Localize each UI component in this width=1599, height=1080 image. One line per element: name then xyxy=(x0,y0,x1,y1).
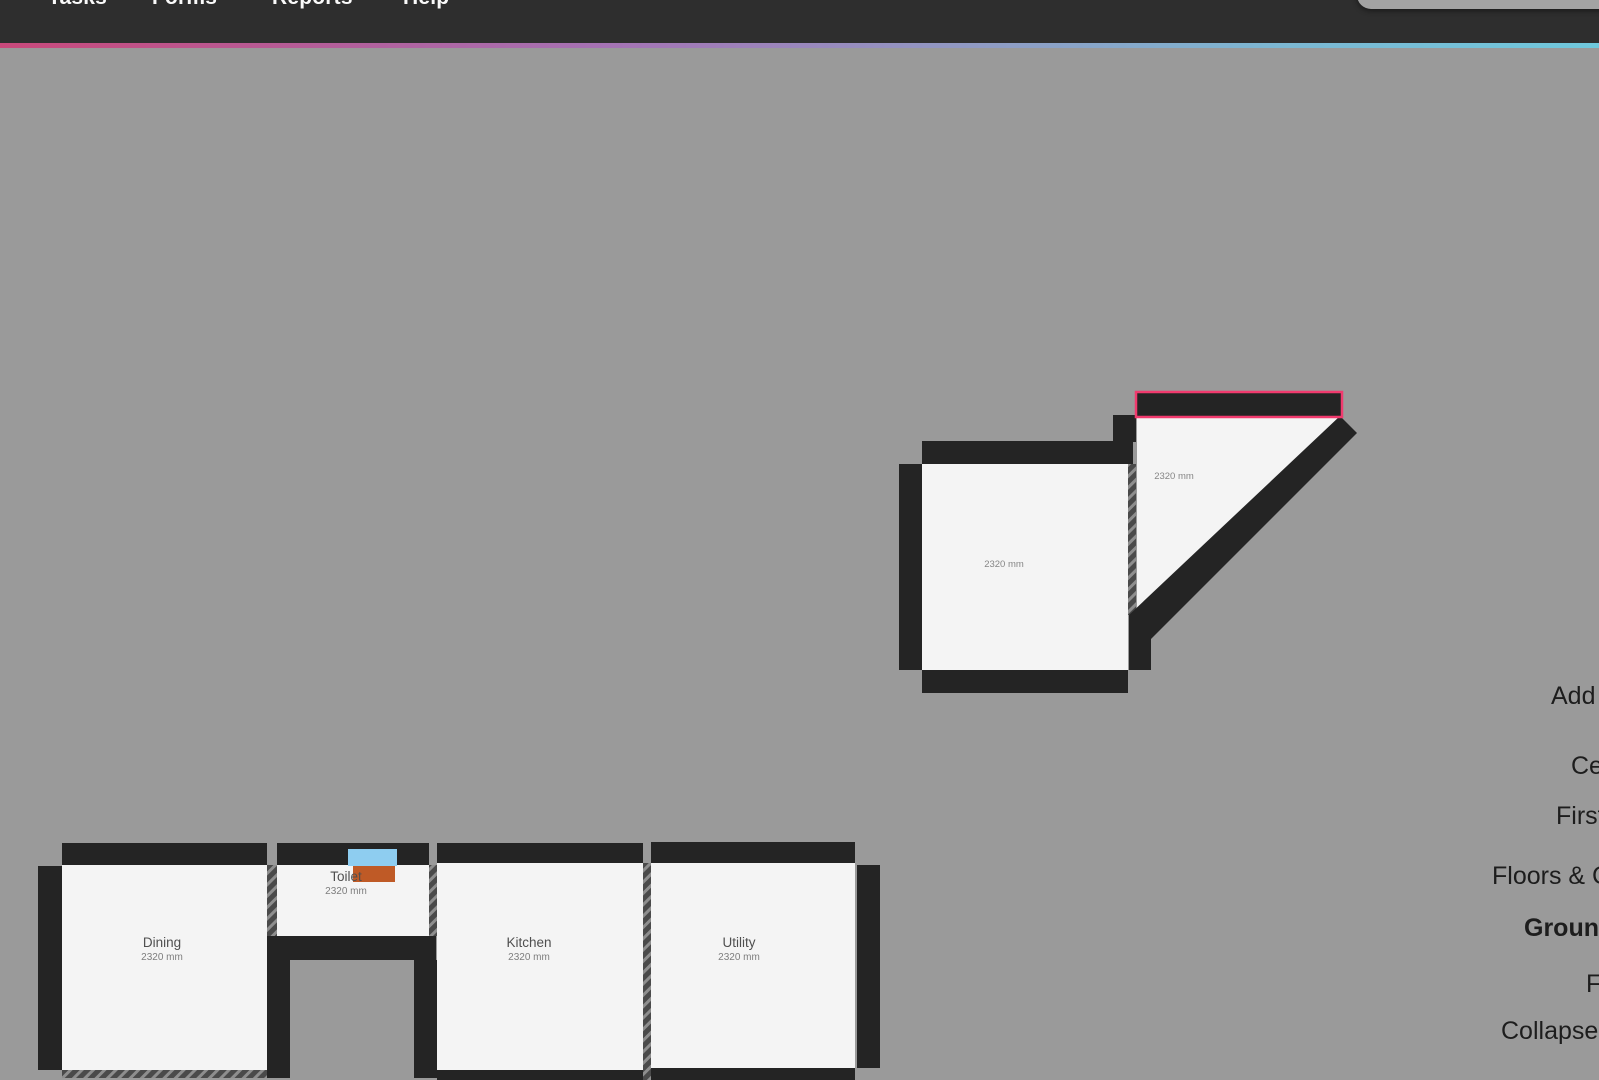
panel-item-floors-ceilings[interactable]: Floors & Cei xyxy=(1492,864,1599,889)
room-floor-kitchen[interactable] xyxy=(437,863,643,1070)
wall-utility-right[interactable] xyxy=(857,865,880,1068)
wall-corridor-left[interactable] xyxy=(267,960,290,1078)
room-floor-dining[interactable] xyxy=(62,865,267,1070)
room-dimension-label: 2320 mm xyxy=(718,952,760,963)
panel-item-f[interactable]: F xyxy=(1586,972,1599,997)
room-name-label: Toilet xyxy=(330,869,362,884)
menu-item-help[interactable]: Help xyxy=(403,0,449,10)
wall-hatched-dining-toilet[interactable] xyxy=(267,865,277,936)
room-dimension-label: 2320 mm xyxy=(984,559,1024,570)
wall-corridor-right[interactable] xyxy=(414,960,437,1078)
wall-dining-left[interactable] xyxy=(38,866,62,1070)
floorplan-canvas[interactable]: 2320 mm 2320 mm Dining 2320 mm Toilet xyxy=(0,0,1599,1080)
menu-item-tasks[interactable]: Tasks xyxy=(48,0,107,10)
wall-square-left[interactable] xyxy=(899,464,922,670)
wall-hatched-square-triangle[interactable] xyxy=(1128,464,1136,615)
wall-below-toilet[interactable] xyxy=(267,936,436,960)
menu-item-forms[interactable]: Forms xyxy=(152,0,217,10)
wall-hatched-kitchen-utility[interactable] xyxy=(643,863,651,1080)
wall-square-top-riser[interactable] xyxy=(1113,415,1136,442)
wall-kitchen-bottom[interactable] xyxy=(437,1070,643,1080)
topbar-rounded-widget[interactable] xyxy=(1357,0,1599,9)
room-group-upper: 2320 mm 2320 mm xyxy=(899,392,1357,693)
wall-kitchen-top[interactable] xyxy=(437,843,643,863)
panel-item-ground-floor[interactable]: Ground xyxy=(1524,916,1599,941)
room-name-label: Utility xyxy=(723,935,756,950)
panel-item-ceilings[interactable]: Cei xyxy=(1571,754,1599,779)
panel-item-collapse-levels[interactable]: Collapse Le xyxy=(1501,1019,1599,1044)
fixture-sink[interactable] xyxy=(348,849,397,866)
wall-utility-top[interactable] xyxy=(651,842,855,863)
room-floor-utility[interactable] xyxy=(651,863,855,1068)
menu-item-reports[interactable]: Reports xyxy=(272,0,353,10)
wall-hatched-dining-bottom[interactable] xyxy=(62,1070,267,1078)
room-group-lower: Dining 2320 mm Toilet 2320 mm Kitchen 23… xyxy=(38,842,880,1080)
wall-dining-top[interactable] xyxy=(62,843,267,865)
top-menubar: Tasks Forms Reports Help xyxy=(0,0,1599,43)
wall-hatched-toilet-kitchen[interactable] xyxy=(429,865,437,936)
room-name-label: Kitchen xyxy=(506,935,551,950)
panel-item-add-level[interactable]: Add L xyxy=(1551,684,1599,709)
accent-gradient-strip xyxy=(0,43,1599,48)
wall-utility-bottom[interactable] xyxy=(651,1068,855,1080)
wall-square-top[interactable] xyxy=(922,441,1133,464)
wall-square-bottom[interactable] xyxy=(922,670,1128,693)
room-dimension-label: 2320 mm xyxy=(508,952,550,963)
selected-wall[interactable] xyxy=(1136,392,1342,417)
panel-item-first-floor[interactable]: First xyxy=(1556,804,1599,829)
room-dimension-label: 2320 mm xyxy=(141,952,183,963)
room-floor-square[interactable] xyxy=(922,464,1128,670)
room-dimension-label: 2320 mm xyxy=(1154,471,1194,482)
room-dimension-label: 2320 mm xyxy=(325,886,367,897)
room-name-label: Dining xyxy=(143,935,181,950)
